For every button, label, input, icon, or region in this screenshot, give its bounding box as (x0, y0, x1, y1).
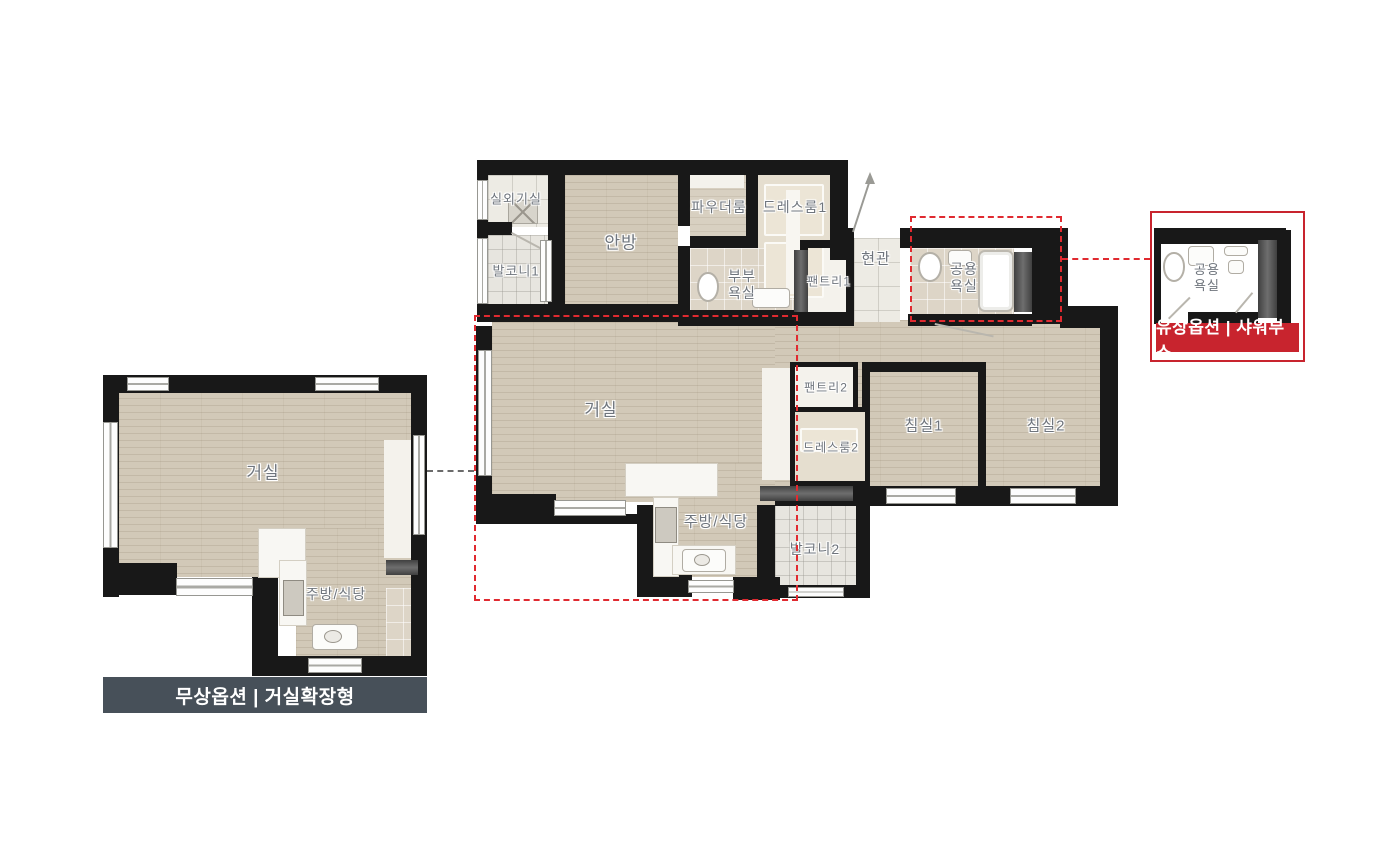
vanity-fixture (752, 288, 790, 308)
duct (386, 560, 418, 575)
room-label-master-bedroom: 안방 (604, 229, 637, 254)
room-label-living: 거실 (246, 459, 279, 484)
utility-tile-floor (386, 588, 411, 658)
wall-segment (103, 563, 177, 595)
shelf-fixture (1224, 246, 1248, 256)
window (308, 658, 362, 673)
room-label-master-bath: 부부 욕실 (728, 268, 756, 302)
stove-fixture (283, 580, 304, 616)
label-line: 욕실 (1194, 278, 1220, 293)
wall-segment (862, 362, 984, 372)
window (540, 240, 552, 302)
caption-free-option: 무상옵션 | 거실확장형 (103, 677, 427, 713)
wall-segment (1154, 228, 1161, 324)
room-label-dressroom2: 드레스룸2 (803, 439, 859, 456)
wall-segment (746, 164, 758, 236)
toilet-fixture (697, 272, 719, 302)
toilet-fixture (1163, 252, 1185, 282)
room-label-dressroom1: 드레스룸1 (763, 197, 827, 217)
pantry-column (384, 440, 411, 558)
label-line: 욕실 (728, 285, 756, 301)
wall-segment (856, 496, 870, 596)
window (477, 238, 488, 304)
room-label-entrance: 현관 (861, 248, 891, 269)
label-line: 부부 (728, 268, 756, 284)
extension-connector-line (427, 470, 474, 472)
duct (1258, 240, 1277, 318)
room-label-shower-bath: 공용 욕실 (1194, 262, 1220, 294)
floorplan-canvas: 거실 주방/식당 무상옵션 | 거실확장형 (0, 0, 1400, 845)
wall-segment (1100, 306, 1118, 506)
wall-segment (1277, 230, 1291, 324)
window (127, 377, 169, 391)
shower-sink-fixture (1228, 260, 1244, 274)
room-label-outdoor-unit: 실외기실 (490, 189, 542, 208)
room-label-pantry2: 팬트리2 (804, 379, 848, 396)
room-label-balcony1: 발코니1 (492, 261, 539, 280)
label-line: 공용 (1194, 262, 1220, 277)
extension-area-outline (474, 315, 798, 601)
window (103, 422, 118, 548)
sink-bowl (324, 630, 342, 643)
shower-connector-line (1062, 258, 1150, 260)
shower-area-outline (910, 216, 1062, 322)
wall-segment (678, 164, 690, 226)
room-label-bedroom2: 침실2 (1027, 415, 1066, 436)
window (886, 488, 956, 504)
window (413, 435, 425, 535)
wall-segment (252, 577, 278, 676)
wall-segment (690, 236, 758, 248)
wall-segment (978, 362, 986, 488)
wall-segment (678, 246, 690, 316)
window (176, 578, 253, 596)
room-label-kitchen: 주방/식당 (306, 584, 366, 604)
wall-segment (477, 160, 848, 175)
caption-paid-option: 유상옵션 | 샤워부스 (1156, 323, 1299, 352)
window (477, 180, 488, 220)
room-label-powder-room: 파우더룸 (691, 197, 747, 217)
entrance-arrow-icon (840, 168, 882, 240)
wall-segment (477, 222, 512, 235)
window (315, 377, 379, 391)
room-label-bedroom1: 침실1 (905, 415, 944, 436)
window (1010, 488, 1076, 504)
duct (794, 250, 808, 312)
room-label-pantry1: 팬트리1 (807, 273, 851, 290)
